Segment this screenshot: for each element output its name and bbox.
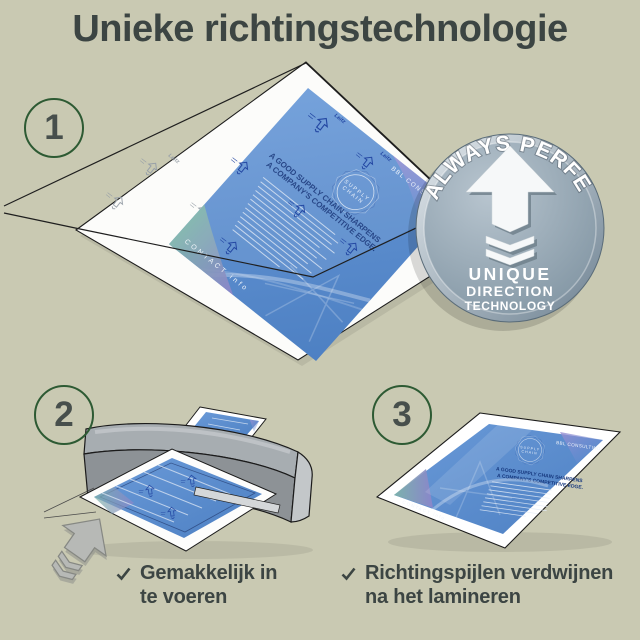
check-icon — [116, 567, 131, 581]
benefit-arrows-disappear: Richtingspijlen verdwijnen na het lamine… — [341, 561, 613, 609]
benefit2-line2: na het lamineren — [365, 585, 613, 609]
badge-line1: UNIQUE — [468, 264, 551, 284]
product-feature-graphic: Leitz SUPPLY CHAIN — [0, 0, 640, 640]
page-title: Unieke richtingstechnologie — [0, 8, 640, 51]
step3-number-badge: 3 — [372, 385, 432, 445]
step1-number-badge: 1 — [24, 98, 84, 158]
step2-number-badge: 2 — [34, 385, 94, 445]
badge-line3: TECHNOLOGY — [465, 299, 556, 313]
step1-number: 1 — [44, 108, 63, 148]
benefit2-line1: Richtingspijlen verdwijnen — [365, 561, 613, 585]
illustration-canvas: Leitz SUPPLY CHAIN — [0, 0, 640, 640]
check-icon — [341, 567, 356, 581]
benefit1-line2: te voeren — [140, 585, 277, 609]
benefit1-line1: Gemakkelijk in — [140, 561, 277, 585]
step3-number: 3 — [392, 395, 411, 435]
step2-number: 2 — [54, 395, 73, 435]
badge-line2: DIRECTION — [466, 283, 554, 299]
benefit-easy-feed: Gemakkelijk in te voeren — [116, 561, 277, 609]
